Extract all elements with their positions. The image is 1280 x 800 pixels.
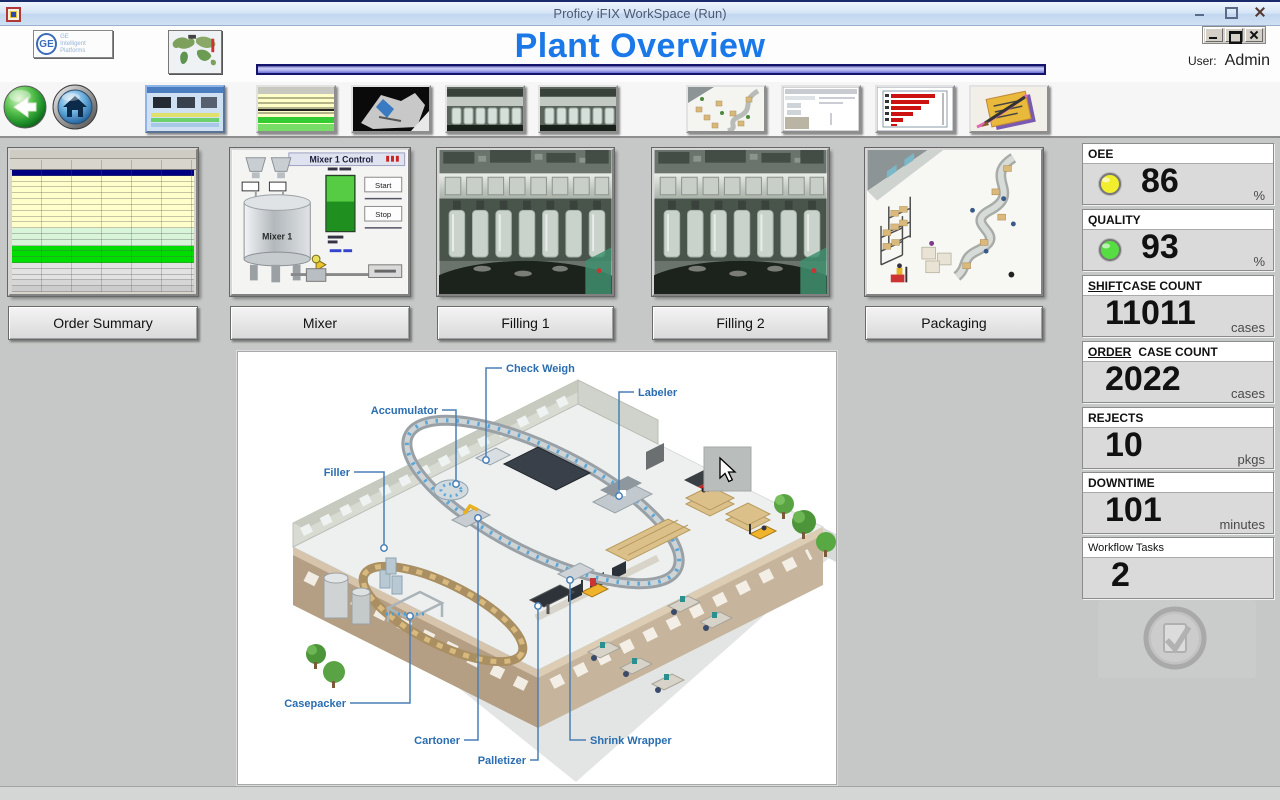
filling-1-preview[interactable]: [437, 148, 614, 296]
nav-thumb-packaging[interactable]: [686, 85, 766, 133]
kpi-quality-label: QUALITY: [1088, 213, 1141, 227]
main-area: Order Summary Mixer 1 Control Mixer 1 St…: [0, 138, 1280, 800]
bottom-strip: [0, 786, 1280, 800]
kpi-shift-label: CASE COUNT: [1123, 279, 1202, 293]
shift-toggle-link[interactable]: SHIFT: [1088, 279, 1123, 293]
ge-logo-text: GE Intelligent Platforms: [60, 34, 110, 55]
kpi-quality: QUALITY 93 %: [1082, 209, 1274, 271]
titlebar-maximize-icon[interactable]: [1224, 6, 1236, 17]
mixer-tank-label: Mixer 1: [262, 232, 292, 242]
label-casepacker: Casepacker: [284, 698, 346, 710]
kpi-oee-unit: %: [1253, 188, 1265, 203]
kpi-order-value: 2022: [1105, 360, 1181, 399]
user-info: User:Admin: [1188, 52, 1270, 70]
nav-thumb-overview[interactable]: [145, 85, 225, 133]
label-accumulator: Accumulator: [371, 405, 439, 417]
kpi-downtime-unit: minutes: [1219, 517, 1265, 532]
mixer-preview[interactable]: Mixer 1 Control Mixer 1 Start Stop: [230, 148, 410, 296]
filling-1-button[interactable]: Filling 1: [437, 306, 614, 340]
navigation-bar: [0, 82, 1280, 138]
kpi-oee: OEE 86 %: [1082, 143, 1274, 205]
window-title: Proficy iFIX WorkSpace (Run): [0, 6, 1280, 21]
page-title: Plant Overview: [515, 27, 766, 66]
oee-led-indicator: [1095, 169, 1125, 199]
title-divider-bar: [256, 64, 1046, 75]
nav-thumb-mixer[interactable]: [351, 85, 431, 133]
mixer-stop-button[interactable]: Stop: [375, 210, 391, 219]
kpi-rejects-unit: pkgs: [1238, 452, 1265, 467]
label-palletizer: Palletizer: [478, 755, 527, 767]
kpi-order-unit: cases: [1231, 386, 1265, 401]
world-map-thumbnail[interactable]: [168, 30, 222, 74]
home-button[interactable]: [52, 84, 98, 130]
label-check-weigh: Check Weigh: [506, 363, 575, 375]
header: GE GE Intelligent Platforms Plant Overvi…: [0, 26, 1280, 82]
mixer-start-button[interactable]: Start: [375, 181, 392, 190]
nav-thumb-order-summary[interactable]: [256, 85, 336, 133]
kpi-rejects: REJECTS 10 pkgs: [1082, 407, 1274, 469]
workflow-ack-button-disabled[interactable]: [1143, 606, 1207, 670]
label-cartoner: Cartoner: [414, 735, 461, 747]
kpi-rejects-value: 10: [1105, 426, 1143, 465]
kpi-quality-unit: %: [1253, 254, 1265, 269]
kpi-workflow-tasks: Workflow Tasks 2: [1082, 537, 1274, 599]
kpi-quality-value: 93: [1141, 228, 1179, 267]
order-toggle-link[interactable]: ORDER: [1088, 345, 1131, 359]
doc-minimize-icon[interactable]: [1205, 28, 1223, 42]
user-label: User:: [1188, 54, 1217, 68]
back-button[interactable]: [3, 85, 47, 129]
filling-2-preview[interactable]: [652, 148, 829, 296]
kpi-rejects-label: REJECTS: [1088, 411, 1143, 425]
kpi-shift-case-count: SHIFTCASE COUNT 11011 cases: [1082, 275, 1274, 337]
plant-floor-diagram: Filler Accumulator Check Weigh Labeler C…: [237, 351, 837, 785]
kpi-oee-value: 86: [1141, 162, 1179, 201]
nav-thumb-filling-2[interactable]: [538, 85, 618, 133]
quality-led-indicator: [1095, 235, 1125, 265]
world-map-icon: [169, 31, 221, 73]
label-filler: Filler: [324, 467, 351, 479]
document-window-controls: [1202, 26, 1266, 44]
label-labeler: Labeler: [638, 387, 678, 399]
filling-2-button[interactable]: Filling 2: [652, 306, 829, 340]
kpi-shift-value: 11011: [1105, 294, 1196, 333]
kpi-order-case-count: ORDERCASE COUNT 2022 cases: [1082, 341, 1274, 403]
kpi-downtime-value: 101: [1105, 491, 1162, 530]
kpi-workflow-label: Workflow Tasks: [1088, 542, 1164, 554]
titlebar-minimize-icon[interactable]: [1194, 6, 1206, 17]
ge-monogram-icon: GE: [36, 33, 57, 55]
mixer-button[interactable]: Mixer: [230, 306, 410, 340]
titlebar-close-icon[interactable]: [1254, 6, 1266, 17]
order-summary-button[interactable]: Order Summary: [8, 306, 198, 340]
packaging-preview[interactable]: [865, 148, 1043, 296]
user-name: Admin: [1225, 52, 1270, 69]
nav-thumb-pareto-chart[interactable]: [875, 85, 955, 133]
nav-thumb-batch-form[interactable]: [781, 85, 861, 133]
doc-close-icon[interactable]: [1245, 28, 1263, 42]
doc-restore-icon[interactable]: [1225, 28, 1243, 42]
nav-thumb-notepad[interactable]: [969, 85, 1049, 133]
kpi-downtime: DOWNTIME 101 minutes: [1082, 472, 1274, 534]
order-summary-preview[interactable]: [8, 148, 198, 296]
kpi-workflow-value: 2: [1111, 556, 1130, 595]
kpi-order-label: CASE COUNT: [1138, 345, 1217, 359]
kpi-downtime-label: DOWNTIME: [1088, 476, 1155, 490]
nav-thumb-filling-1[interactable]: [445, 85, 525, 133]
kpi-shift-unit: cases: [1231, 320, 1265, 335]
ge-logo-button[interactable]: GE GE Intelligent Platforms: [33, 30, 113, 58]
mixer-panel-title: Mixer 1 Control: [310, 155, 374, 165]
kpi-oee-label: OEE: [1088, 147, 1113, 161]
label-shrink-wrapper: Shrink Wrapper: [590, 735, 672, 747]
packaging-button[interactable]: Packaging: [865, 306, 1043, 340]
window-titlebar: Proficy iFIX WorkSpace (Run): [0, 0, 1280, 26]
